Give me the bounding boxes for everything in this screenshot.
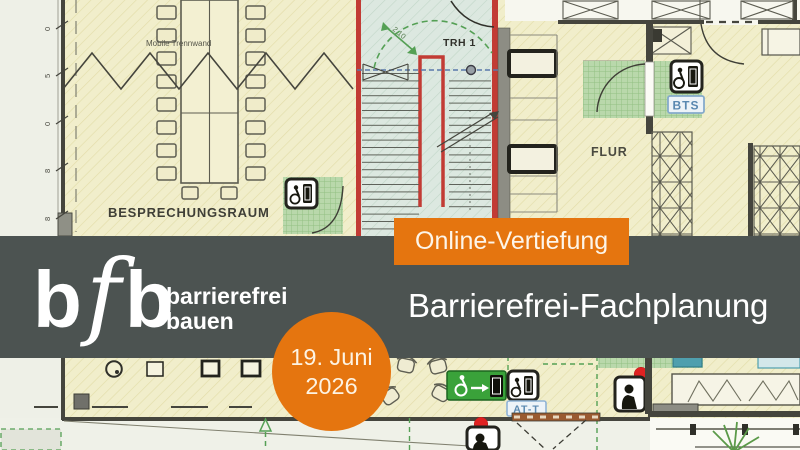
door-element — [509, 51, 556, 76]
accessible-exit-icon — [447, 371, 506, 400]
sideboard — [673, 357, 702, 367]
dimension-tick-label: 5 — [43, 74, 52, 78]
wheelchair-door-icon — [671, 61, 702, 92]
sofa — [672, 374, 800, 405]
format-badge: Online-Vertiefung — [394, 218, 629, 265]
dimension-tick-label: 0 — [43, 122, 52, 126]
sideboard — [758, 357, 800, 368]
stairwell-label: TRH 1 — [443, 37, 476, 49]
meeting-room-label: BESPRECHUNGSRAUM — [108, 205, 270, 220]
fire-wall — [356, 0, 361, 236]
side-table — [762, 29, 800, 55]
event-date-badge: 19. Juni 2026 — [272, 312, 391, 431]
stair-treads — [362, 73, 419, 233]
partition-label: Mobile Trennwand — [146, 39, 211, 48]
logo-tagline-line1: barrierefrei — [166, 284, 287, 309]
cabinet-symbol — [651, 27, 691, 54]
dimension-tick-label: 0 — [43, 27, 52, 31]
event-date-line2: 2026 — [305, 372, 357, 401]
door-leaf — [645, 62, 654, 116]
logo-tagline: barrierefrei bauen — [166, 284, 287, 334]
stair-treads — [449, 76, 491, 212]
dimension-tick-label: 8 — [43, 217, 52, 221]
bts-label: BTS — [668, 96, 704, 113]
logo-letter: b — [33, 260, 82, 340]
event-banner-image: 0 5 0 8 8 Mobile Trennwand BESPRECHUNGSR… — [0, 0, 800, 450]
bfb-logo: b f b — [33, 248, 174, 343]
corridor-label: FLUR — [591, 145, 628, 159]
door-element — [509, 146, 556, 172]
masonry-wall — [512, 413, 600, 421]
logo-letter: f — [86, 248, 121, 343]
event-date-line1: 19. Juni — [290, 343, 372, 372]
shaft-symbols — [563, 0, 793, 20]
wheelchair-door-icon — [508, 371, 538, 400]
event-title: Barrierefrei-Fachplanung — [408, 287, 768, 325]
format-badge-label: Online-Vertiefung — [415, 227, 608, 255]
wheelchair-door-icon — [286, 179, 317, 208]
logo-tagline-line2: bauen — [166, 309, 287, 334]
dimension-tick-label: 8 — [43, 169, 52, 173]
door-maneuvering-zone — [583, 61, 645, 118]
exterior-zone — [1, 429, 61, 450]
svg-text:BTS: BTS — [673, 99, 700, 113]
conference-table — [181, 0, 238, 183]
